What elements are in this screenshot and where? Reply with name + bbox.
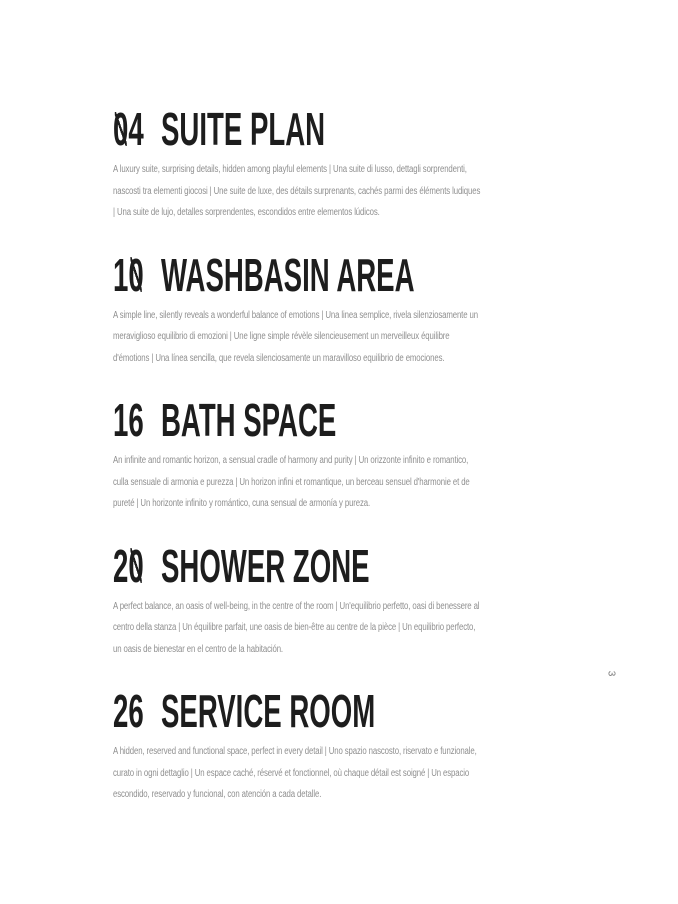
entry-page-number: 04 xyxy=(113,106,161,152)
entry-page-number: 10 xyxy=(113,252,161,298)
entry-description: A perfect balance, an oasis of well-bein… xyxy=(113,596,481,661)
entry-description: A luxury suite, surprising details, hidd… xyxy=(113,159,481,224)
entry-heading: 04SUITE PLAN xyxy=(113,106,593,152)
entry-description: An infinite and romantic horizon, a sens… xyxy=(113,450,481,515)
entry-page-number: 20 xyxy=(113,543,161,589)
entry-page-number: 26 xyxy=(113,688,161,734)
toc-entry: 04SUITE PLAN A luxury suite, surprising … xyxy=(113,106,593,224)
entry-page-number: 16 xyxy=(113,397,161,443)
entry-title: SHOWER ZONE xyxy=(161,540,370,592)
page-number: 3 xyxy=(605,671,616,677)
entry-title: SERVICE ROOM xyxy=(161,685,375,737)
entry-description: A simple line, silently reveals a wonder… xyxy=(113,305,481,370)
entry-heading: 26SERVICE ROOM xyxy=(113,688,593,734)
entry-heading: 20SHOWER ZONE xyxy=(113,543,593,589)
entry-heading: 10WASHBASIN AREA xyxy=(113,252,593,298)
toc-entry: 10WASHBASIN AREA A simple line, silently… xyxy=(113,252,593,370)
entry-title: WASHBASIN AREA xyxy=(161,249,415,301)
toc-entry: 20SHOWER ZONE A perfect balance, an oasi… xyxy=(113,543,593,661)
catalog-page: 04SUITE PLAN A luxury suite, surprising … xyxy=(0,0,678,904)
toc-entry: 26SERVICE ROOM A hidden, reserved and fu… xyxy=(113,688,593,806)
entry-heading: 16BATH SPACE xyxy=(113,397,593,443)
entry-title: BATH SPACE xyxy=(161,394,336,446)
entry-title: SUITE PLAN xyxy=(161,103,325,155)
table-of-contents: 04SUITE PLAN A luxury suite, surprising … xyxy=(113,106,593,834)
toc-entry: 16BATH SPACE An infinite and romantic ho… xyxy=(113,397,593,515)
entry-description: A hidden, reserved and functional space,… xyxy=(113,741,481,806)
